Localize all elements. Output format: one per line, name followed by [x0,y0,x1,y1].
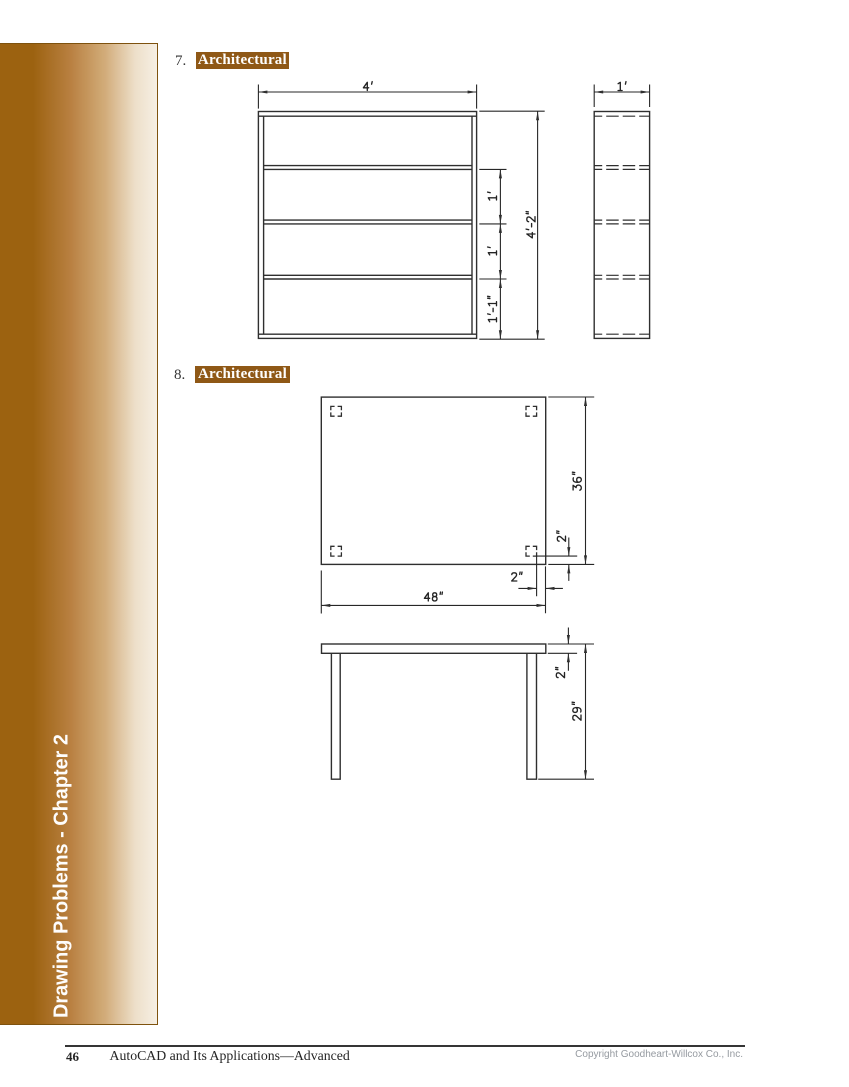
svg-text:Drawing Problems - Chapter 2: Drawing Problems - Chapter 2 [49,734,72,1018]
